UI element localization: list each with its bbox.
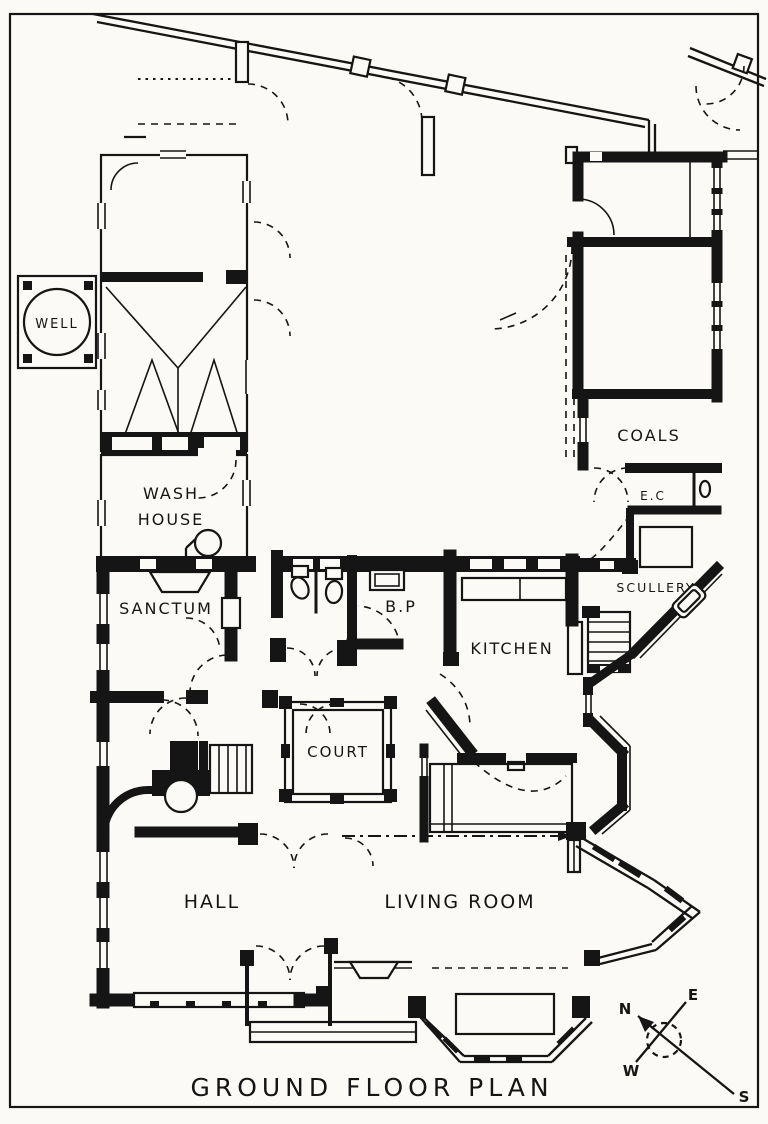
fence-post <box>733 54 752 73</box>
door-swing-arc <box>254 300 290 336</box>
plan-title: GROUND FLOOR PLAN <box>190 1073 553 1102</box>
cistern <box>292 566 308 577</box>
fence-post <box>350 57 370 77</box>
fence-post <box>236 42 248 82</box>
court: COURT <box>262 690 397 804</box>
door-swing-arc <box>111 163 138 190</box>
door-swing-arc <box>260 834 294 868</box>
toilet <box>288 575 312 602</box>
sanctum-label: SANCTUM <box>119 599 213 618</box>
window <box>577 418 589 442</box>
door-swing-arc <box>345 838 373 866</box>
fireplace <box>150 572 210 592</box>
arched-recess <box>165 780 197 812</box>
door-swing-arc <box>186 618 220 650</box>
compass-w: W <box>623 1062 640 1080</box>
outbuilding <box>95 148 290 455</box>
door-swing-arc <box>594 468 628 502</box>
hall-window-band <box>134 993 304 1007</box>
compass-rose: N E W S <box>619 986 750 1106</box>
kitchen-label: KITCHEN <box>470 639 553 658</box>
hall-label: HALL <box>184 891 240 913</box>
window <box>583 695 594 713</box>
compass-s: S <box>739 1088 750 1106</box>
door-swing-arc <box>306 704 336 734</box>
living-room-label: LIVING ROOM <box>384 891 535 913</box>
door-swing-arc <box>254 222 290 258</box>
door-swing-arc <box>290 946 324 980</box>
well-label: WELL <box>35 317 79 332</box>
south-bay-window <box>408 994 592 1063</box>
compass-n: N <box>619 1000 632 1018</box>
door-swing-arc <box>256 946 290 980</box>
well: WELL <box>18 276 96 368</box>
hatch <box>222 598 240 628</box>
window <box>419 758 430 776</box>
fence-post <box>445 75 465 95</box>
door-swing-arc <box>190 655 226 692</box>
wash-house: WASH HOUSE <box>95 448 253 565</box>
toilet <box>700 481 710 497</box>
kitchen-dresser <box>462 578 566 600</box>
boundary-fence <box>93 14 766 175</box>
door-swing-arc <box>300 704 330 734</box>
north-arrow <box>638 1016 654 1032</box>
window-seat <box>456 994 554 1034</box>
veranda <box>342 654 632 841</box>
door-swing-arc <box>492 247 572 329</box>
door-swing-arc <box>578 199 614 235</box>
ec-label: E.C <box>640 489 666 503</box>
stair-cupboard <box>568 622 582 674</box>
north-south-line <box>638 1016 734 1094</box>
copper-boiler <box>195 530 221 556</box>
lavatories-and-bp: B.P <box>270 556 456 676</box>
larder <box>640 527 692 567</box>
gate-swing-arc <box>248 84 288 124</box>
floor-plan-page: WELL WASH HOUSE <box>0 0 768 1124</box>
court-label: COURT <box>307 743 369 761</box>
door-swing-arc <box>198 460 236 498</box>
door-swing-arc <box>150 698 186 734</box>
wash-house-label: HOUSE <box>138 510 205 529</box>
coals-label: COALS <box>617 426 681 445</box>
coals-ec-scullery: COALS E.C SCULLERY <box>560 394 722 658</box>
right-building <box>492 147 757 460</box>
east-west-line <box>636 1002 686 1062</box>
bp-label: B.P <box>385 597 417 616</box>
chimney <box>170 741 198 773</box>
door-swing-arc <box>162 700 198 736</box>
gate-post <box>422 117 434 175</box>
toilet <box>325 580 343 604</box>
floor-plan-drawing: WELL WASH HOUSE <box>0 0 768 1124</box>
door-swing-arc <box>294 834 328 868</box>
compass-e: E <box>688 986 698 1004</box>
wash-house-label: WASH <box>143 484 199 503</box>
east-bay-window <box>568 838 700 966</box>
door-swing-arc <box>287 648 315 676</box>
entrance-porch <box>240 938 416 1042</box>
door-swing-arc <box>586 515 630 562</box>
canted-window <box>350 962 398 978</box>
kitchen: KITCHEN <box>440 556 580 724</box>
cistern <box>326 568 342 579</box>
